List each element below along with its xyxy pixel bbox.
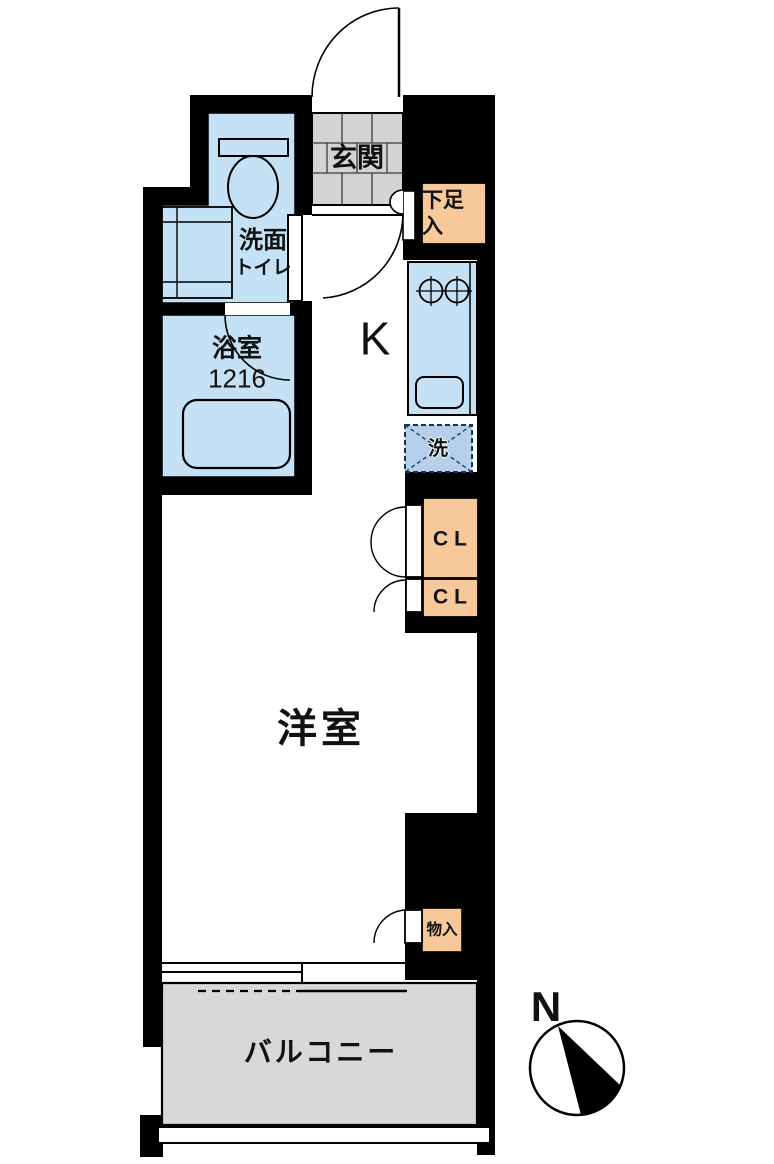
kitchen-label: K	[360, 314, 391, 365]
floor-plan-drawing	[0, 0, 774, 1164]
compass-icon	[530, 1021, 624, 1115]
floor-plan: 玄関 下足 入 洗面 トイレ 浴室 1216 K 洗 CL CL 洋室 物入 バ…	[0, 0, 774, 1164]
entry-door-icon	[312, 8, 399, 97]
hall-door-icon	[323, 190, 415, 298]
closet-lower-label: CL	[427, 585, 473, 608]
washroom-door-icon	[288, 215, 312, 301]
shoe-cabinet-label-line1: 下足	[422, 188, 486, 214]
balcony-label: バルコニー	[244, 1038, 398, 1069]
bathroom-size-label: 1216	[208, 365, 266, 394]
kitchen-counter	[408, 262, 477, 415]
closet-door-arcs-icon	[371, 507, 406, 612]
shoe-cabinet-label-line2: 入	[422, 214, 486, 240]
storage-label: 物入	[426, 921, 457, 938]
shoe-cabinet-label: 下足 入	[422, 188, 486, 241]
balcony-railing	[158, 1127, 490, 1143]
western-room-label: 洋室	[277, 707, 365, 751]
washroom-label: 洗面	[239, 228, 287, 254]
genkan-label: 玄関	[330, 144, 384, 174]
washbasin-icon	[162, 207, 232, 298]
sink-icon	[416, 377, 463, 408]
toilet-label: トイレ	[234, 259, 291, 280]
closet-upper-label: CL	[427, 527, 473, 550]
bathroom-label: 浴室	[212, 335, 262, 363]
compass-north-label: N	[531, 984, 561, 1030]
washer-label: 洗	[428, 438, 448, 460]
bathtub-icon	[183, 400, 290, 468]
storage-door-icon	[374, 910, 407, 943]
